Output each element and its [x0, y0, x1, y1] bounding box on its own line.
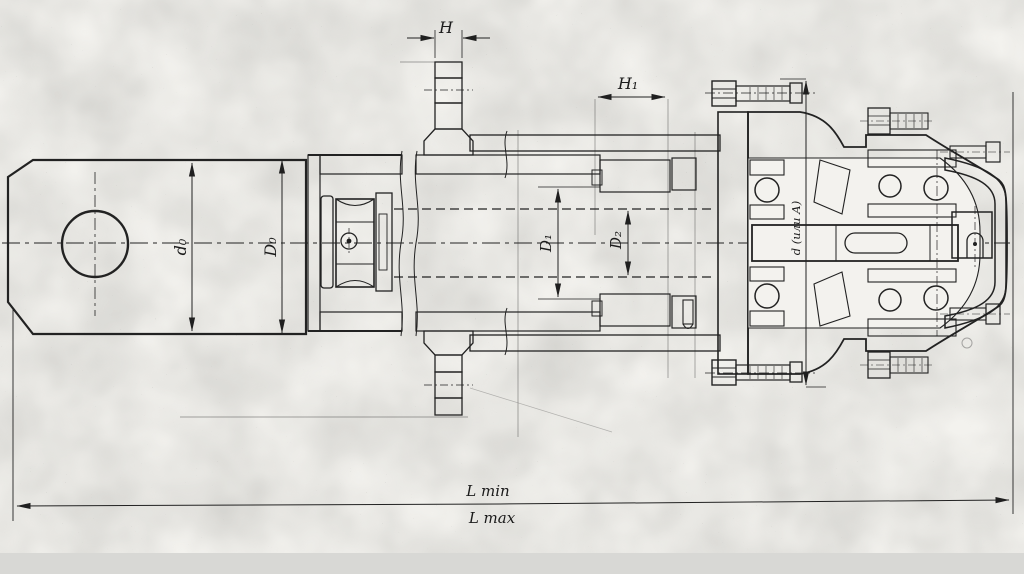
label-D2: D₂ — [607, 231, 625, 250]
label-D0: D₀ — [261, 237, 280, 258]
label-D1: D₁ — [537, 234, 555, 253]
label-H: H — [438, 18, 454, 37]
label-l-min: L min — [465, 482, 509, 500]
engineering-drawing: d₀ D₀ H D₁ — [0, 0, 1024, 574]
label-d-or-A: d (или А) — [789, 201, 803, 256]
label-l-max: L max — [468, 509, 516, 527]
bottom-scan-band — [0, 553, 1024, 574]
label-H1: H₁ — [617, 74, 638, 93]
technical-drawing-canvas: d₀ D₀ H D₁ — [0, 0, 1024, 574]
label-d0: d₀ — [171, 238, 190, 255]
housing-cavity — [748, 158, 980, 328]
